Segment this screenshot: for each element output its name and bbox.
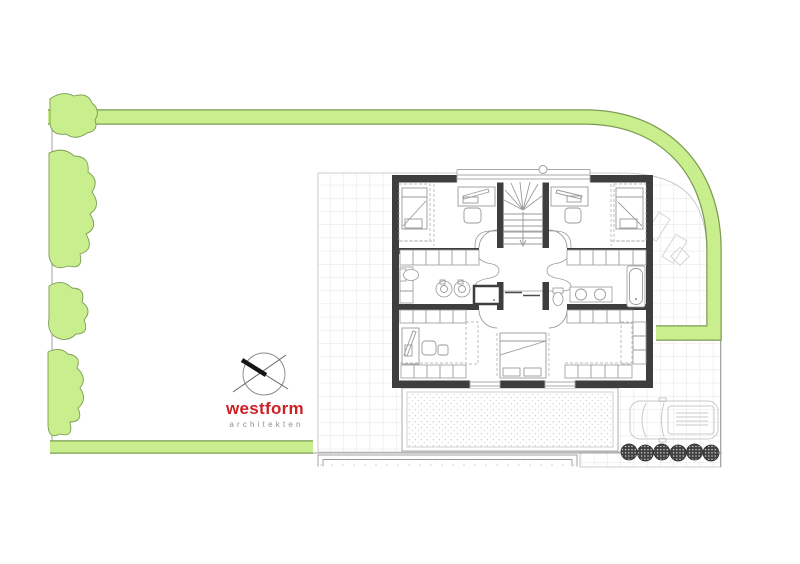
terrace-paving (407, 392, 613, 447)
shrub (670, 445, 686, 461)
closet-row (400, 250, 479, 265)
lawn-strip (318, 455, 577, 467)
building-floor-plan (392, 166, 653, 389)
tree-blob (48, 349, 84, 435)
logo-brand: westform (214, 400, 316, 417)
stair-wall-right (543, 182, 550, 248)
closet-row (401, 365, 466, 378)
closet-column (633, 322, 646, 364)
wall-north-right (590, 175, 653, 183)
shrub (687, 444, 703, 460)
shrub (637, 445, 653, 461)
wall-west (392, 175, 399, 388)
site-plan-drawing (0, 0, 800, 564)
wall-south-right (575, 381, 653, 389)
closet-row (567, 310, 633, 323)
shower (474, 286, 500, 304)
shower-drain (493, 299, 495, 301)
stair-wall-left (497, 182, 504, 248)
shrub (621, 444, 637, 460)
wall-south-mid (500, 381, 545, 389)
tree-blob (49, 150, 97, 268)
site-plan-page: westform architekten (0, 0, 800, 564)
trees (48, 94, 97, 436)
north-compass (233, 353, 288, 395)
closet-row (565, 365, 632, 378)
lawn-texture (318, 455, 577, 466)
tree-blob (50, 94, 97, 138)
logo-tagline: architekten (214, 420, 316, 429)
vent-marker (539, 166, 547, 174)
wall-east (646, 175, 653, 388)
toilet-bowl (404, 270, 419, 281)
compass-north-needle (242, 360, 266, 375)
sink (454, 281, 470, 297)
hall-stub-right (543, 282, 550, 310)
closet-row (567, 250, 646, 265)
shrub (654, 444, 670, 460)
sink (436, 281, 452, 297)
wall-low-left (399, 304, 479, 310)
terrace (402, 388, 618, 451)
wall-south-left (392, 381, 470, 389)
tree-blob (49, 282, 88, 339)
logo: westform architekten (214, 400, 316, 429)
closet-row (400, 310, 466, 323)
toilet-bowl (553, 293, 563, 306)
bathtub-drain (635, 298, 637, 300)
wall-north-left (392, 175, 457, 183)
shrub (703, 445, 719, 461)
